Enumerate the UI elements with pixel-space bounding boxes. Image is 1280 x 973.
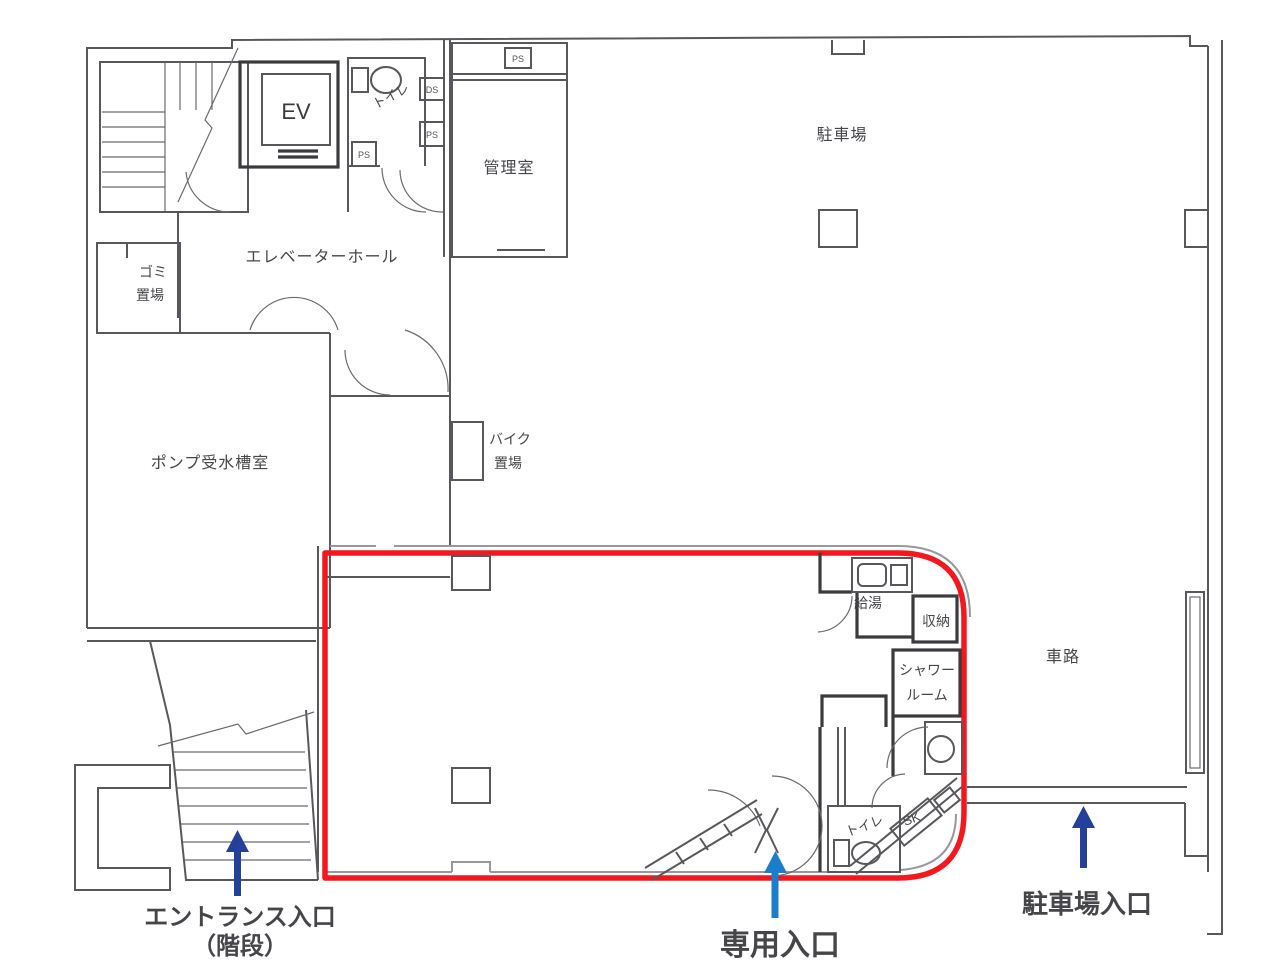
entrance-arrow-head-icon bbox=[226, 830, 249, 852]
parking-entrance-arrow-head-icon bbox=[1072, 806, 1095, 828]
cluster-left-wall bbox=[820, 716, 893, 872]
toilet-room-upper: トイレ DS PS PS bbox=[348, 40, 450, 257]
stairwell-top-left bbox=[100, 48, 248, 212]
building-outline bbox=[87, 36, 1222, 934]
private-entrance-annotation: 専用入口 bbox=[720, 851, 840, 962]
ps-label-left: PS bbox=[358, 150, 370, 160]
ps-strip-walls bbox=[444, 40, 450, 257]
shower-label-2: ルーム bbox=[906, 687, 948, 703]
parking-area: 駐車場 bbox=[816, 126, 867, 247]
sink-icon bbox=[858, 564, 886, 586]
pump-room-bottom-wall bbox=[87, 628, 330, 641]
ev-door-icon bbox=[278, 151, 318, 157]
right-wall-outer bbox=[1207, 40, 1222, 934]
wc-tank-icon bbox=[834, 840, 849, 866]
sk-label: SK bbox=[901, 809, 923, 829]
stove-icon bbox=[891, 565, 907, 585]
admin-room-divider bbox=[452, 74, 567, 80]
ev-room: EV bbox=[240, 62, 338, 167]
ramp-icon bbox=[645, 800, 762, 880]
basin-icon bbox=[928, 736, 954, 762]
pump-room-label: ポンプ受水槽室 bbox=[151, 454, 270, 472]
cluster-door-arcs bbox=[872, 727, 928, 808]
ps-label-right: PS bbox=[426, 130, 438, 140]
shower-label-1: シャワー bbox=[899, 662, 955, 678]
private-entrance-label: 専用入口 bbox=[720, 929, 840, 962]
stair-treads-icon bbox=[102, 62, 212, 212]
private-entrance-door bbox=[645, 776, 822, 880]
admin-room: PS 管理室 bbox=[452, 43, 567, 257]
double-door-icon bbox=[755, 808, 778, 853]
ev-label: EV bbox=[281, 99, 311, 124]
parking-entrance-annotation: 駐車場入口 bbox=[1022, 806, 1152, 919]
pump-room: ポンプ受水槽室 bbox=[151, 454, 270, 472]
entrance-annotation: エントランス入口 （階段） bbox=[144, 830, 336, 960]
floor-plan: EV トイレ DS PS PS PS 管理室 駐車場 エレベーターホール bbox=[0, 0, 1280, 973]
bike-rack bbox=[452, 422, 483, 480]
stairwell-box bbox=[100, 62, 248, 212]
admin-room-label: 管理室 bbox=[483, 159, 534, 177]
bike-label-2: 置場 bbox=[494, 455, 522, 471]
toilet-upper-label: トイレ bbox=[370, 80, 411, 112]
parking-label: 駐車場 bbox=[816, 126, 867, 144]
corridor-double-wall bbox=[838, 727, 845, 806]
garbage-label-2: 置場 bbox=[136, 287, 164, 303]
entrance-break-line bbox=[158, 712, 314, 746]
toilet-lower-label: トイレ bbox=[844, 812, 886, 839]
hall-door-arcs bbox=[186, 170, 448, 395]
leased-column-top bbox=[452, 556, 490, 590]
top-wall-notch bbox=[832, 40, 864, 54]
driveway-label: 車路 bbox=[1046, 648, 1080, 666]
basin-room-box bbox=[925, 722, 962, 774]
utility-cluster: 給湯 収納 シャワー ルーム SK トイレ bbox=[818, 553, 963, 874]
entrance-stairs bbox=[75, 641, 318, 890]
admin-door-icon bbox=[497, 250, 545, 257]
private-entrance-arrow-head-icon bbox=[764, 851, 787, 873]
kitchen-door-arc bbox=[818, 596, 852, 632]
elevator-hall: エレベーターホール bbox=[100, 170, 450, 628]
shutter-icon-inner bbox=[1190, 597, 1200, 768]
private-entrance-arrow-stem bbox=[772, 870, 779, 918]
ds-label: DS bbox=[426, 85, 439, 95]
bike-area: バイク 置場 bbox=[452, 422, 531, 480]
shower-room-box bbox=[893, 650, 960, 716]
garbage-label-1: ゴミ bbox=[139, 264, 167, 280]
elevator-hall-label: エレベーターホール bbox=[245, 248, 398, 266]
shutter-icon-outer bbox=[1186, 592, 1204, 773]
leased-column-mid bbox=[452, 768, 490, 803]
entrance-label-1: エントランス入口 bbox=[144, 904, 336, 931]
parking-column bbox=[819, 210, 857, 247]
annotations: エントランス入口 （階段） 専用入口 駐車場入口 bbox=[144, 806, 1152, 962]
right-wall-column bbox=[1185, 210, 1208, 247]
parking-entrance-arrow-stem bbox=[1080, 824, 1087, 868]
hot-water-label: 給湯 bbox=[854, 595, 882, 611]
toilet-tank-icon bbox=[352, 68, 368, 92]
entrance-label-2: （階段） bbox=[192, 932, 288, 960]
left-hook-wall bbox=[75, 765, 170, 890]
storage-label: 収納 bbox=[922, 613, 950, 629]
entrance-arrow-stem bbox=[234, 848, 241, 896]
admin-room-box bbox=[452, 43, 567, 257]
bracket-wall bbox=[822, 696, 886, 727]
floor-plan-page: EV トイレ DS PS PS PS 管理室 駐車場 エレベーターホール bbox=[0, 0, 1280, 973]
ps-label-admin: PS bbox=[512, 54, 524, 64]
bike-label-1: バイク bbox=[489, 431, 531, 447]
parking-entrance-label: 駐車場入口 bbox=[1022, 889, 1152, 919]
